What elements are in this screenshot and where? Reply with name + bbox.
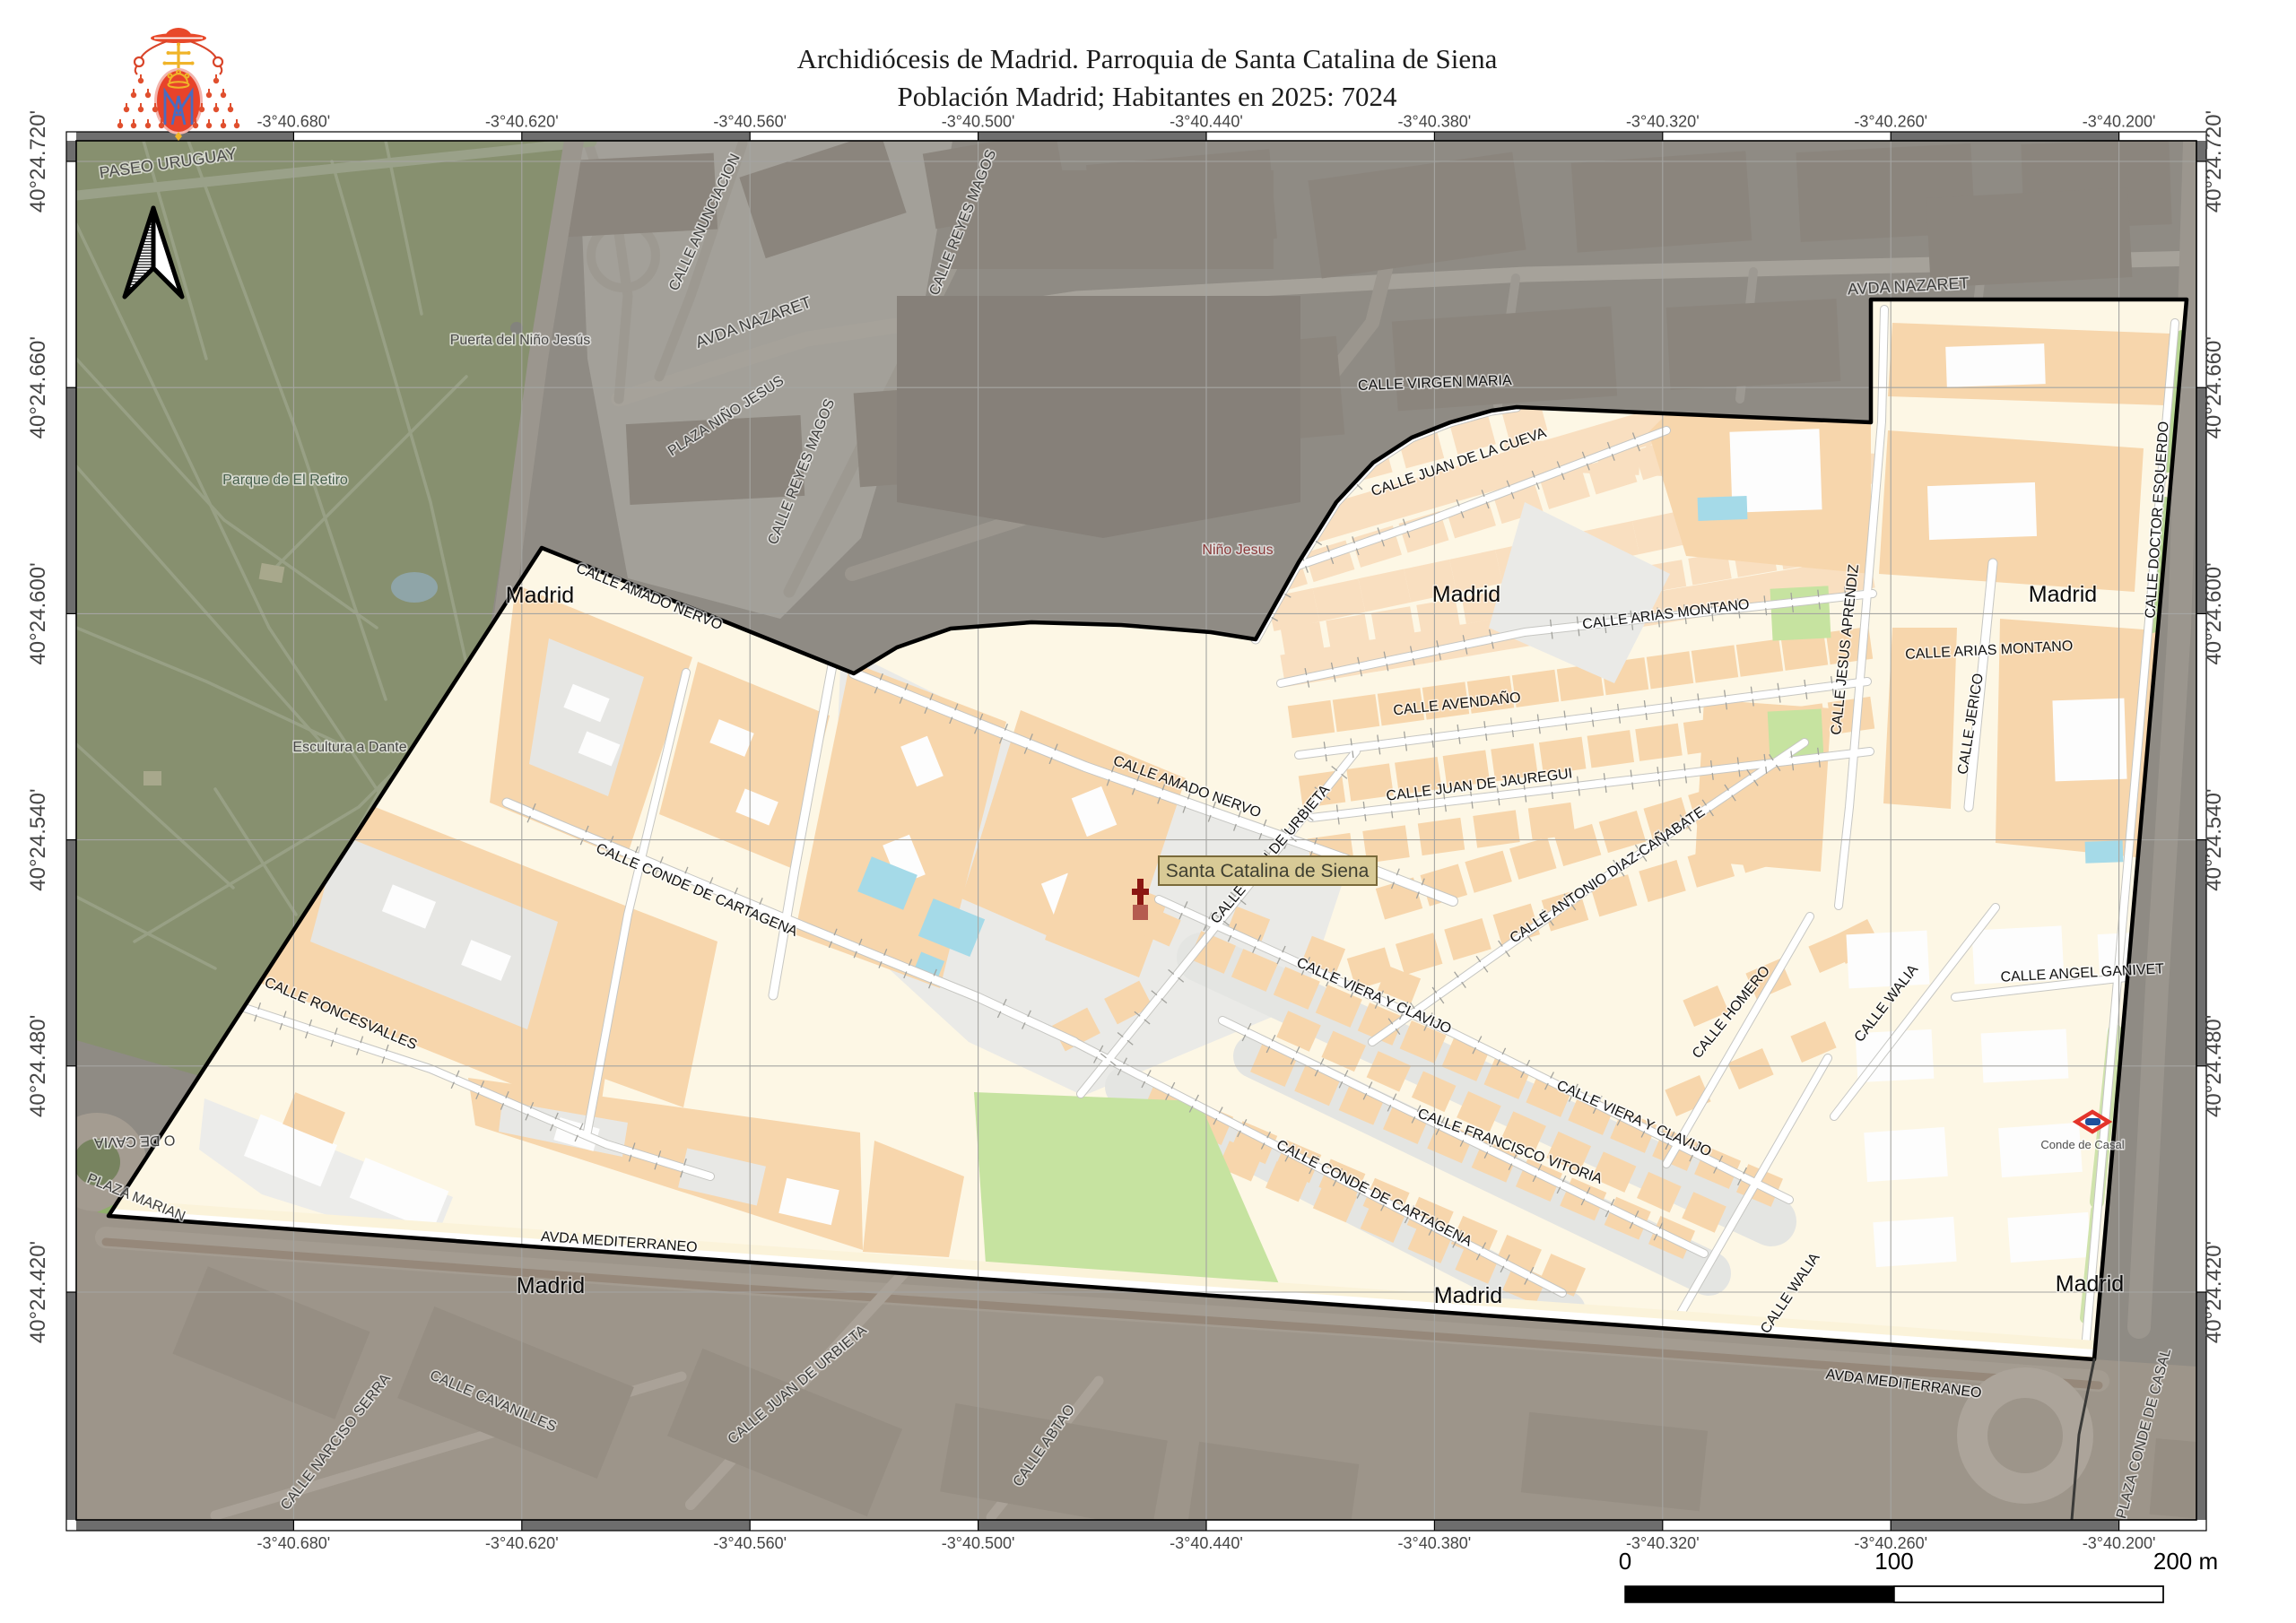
svg-text:-3°40.320': -3°40.320' xyxy=(1626,113,1700,131)
svg-text:Población Madrid; Habitantes e: Población Madrid; Habitantes en 2025: 70… xyxy=(897,81,1397,112)
svg-text:-3°40.500': -3°40.500' xyxy=(942,1534,1015,1552)
svg-text:-3°40.200': -3°40.200' xyxy=(2083,113,2156,131)
svg-text:-3°40.500': -3°40.500' xyxy=(942,113,1015,131)
svg-text:-3°40.680': -3°40.680' xyxy=(257,1534,331,1552)
svg-text:Puerta del Niño Jesús: Puerta del Niño Jesús xyxy=(450,333,591,348)
svg-text:-3°40.320': -3°40.320' xyxy=(1626,1534,1700,1552)
svg-text:-3°40.380': -3°40.380' xyxy=(1398,1534,1472,1552)
svg-text:Niño Jesus: Niño Jesus xyxy=(1202,542,1273,558)
svg-text:Madrid: Madrid xyxy=(506,583,574,608)
svg-text:-3°40.680': -3°40.680' xyxy=(257,113,331,131)
svg-text:40°24.420': 40°24.420' xyxy=(26,1241,50,1343)
svg-text:-3°40.200': -3°40.200' xyxy=(2083,1534,2156,1552)
svg-text:40°24.540': 40°24.540' xyxy=(26,788,50,890)
svg-text:Madrid: Madrid xyxy=(2029,582,2097,607)
svg-text:40°24.600': 40°24.600' xyxy=(26,562,50,664)
svg-text:Archidiócesis de Madrid. Parro: Archidiócesis de Madrid. Parroquia de Sa… xyxy=(797,43,1498,74)
svg-text:40°24.660': 40°24.660' xyxy=(2202,336,2226,438)
svg-text:-3°40.620': -3°40.620' xyxy=(485,1534,559,1552)
svg-text:Parque de El Retiro: Parque de El Retiro xyxy=(222,473,348,488)
svg-text:-3°40.380': -3°40.380' xyxy=(1398,113,1472,131)
svg-text:40°24.420': 40°24.420' xyxy=(2202,1241,2226,1343)
svg-text:Madrid: Madrid xyxy=(1434,1283,1502,1308)
svg-text:Escultura a Dante: Escultura a Dante xyxy=(292,740,406,755)
svg-text:Madrid: Madrid xyxy=(517,1273,585,1298)
svg-text:-3°40.260': -3°40.260' xyxy=(1854,113,1927,131)
svg-text:-3°40.440': -3°40.440' xyxy=(1170,113,1243,131)
svg-text:Madrid: Madrid xyxy=(1432,582,1500,607)
svg-text:40°24.540': 40°24.540' xyxy=(2202,788,2226,890)
svg-text:Conde de Casal: Conde de Casal xyxy=(2040,1138,2124,1151)
svg-text:40°24.600': 40°24.600' xyxy=(2202,562,2226,664)
svg-text:40°24.480': 40°24.480' xyxy=(26,1015,50,1117)
svg-text:-3°40.440': -3°40.440' xyxy=(1170,1534,1243,1552)
svg-text:Santa Catalina de Siena: Santa Catalina de Siena xyxy=(1166,861,1370,881)
svg-text:-3°40.560': -3°40.560' xyxy=(713,113,787,131)
svg-text:40°24.660': 40°24.660' xyxy=(26,336,50,438)
svg-text:40°24.720': 40°24.720' xyxy=(26,110,50,213)
svg-text:40°24.480': 40°24.480' xyxy=(2202,1015,2226,1117)
svg-text:Madrid: Madrid xyxy=(2056,1271,2124,1297)
svg-text:40°24.720': 40°24.720' xyxy=(2202,110,2226,213)
svg-text:O DE CAVIA: O DE CAVIA xyxy=(93,1132,175,1150)
svg-text:0: 0 xyxy=(1619,1548,1631,1575)
svg-text:-3°40.620': -3°40.620' xyxy=(485,113,559,131)
svg-text:200 m: 200 m xyxy=(2153,1548,2218,1575)
svg-text:100: 100 xyxy=(1874,1548,1913,1575)
svg-text:-3°40.560': -3°40.560' xyxy=(713,1534,787,1552)
